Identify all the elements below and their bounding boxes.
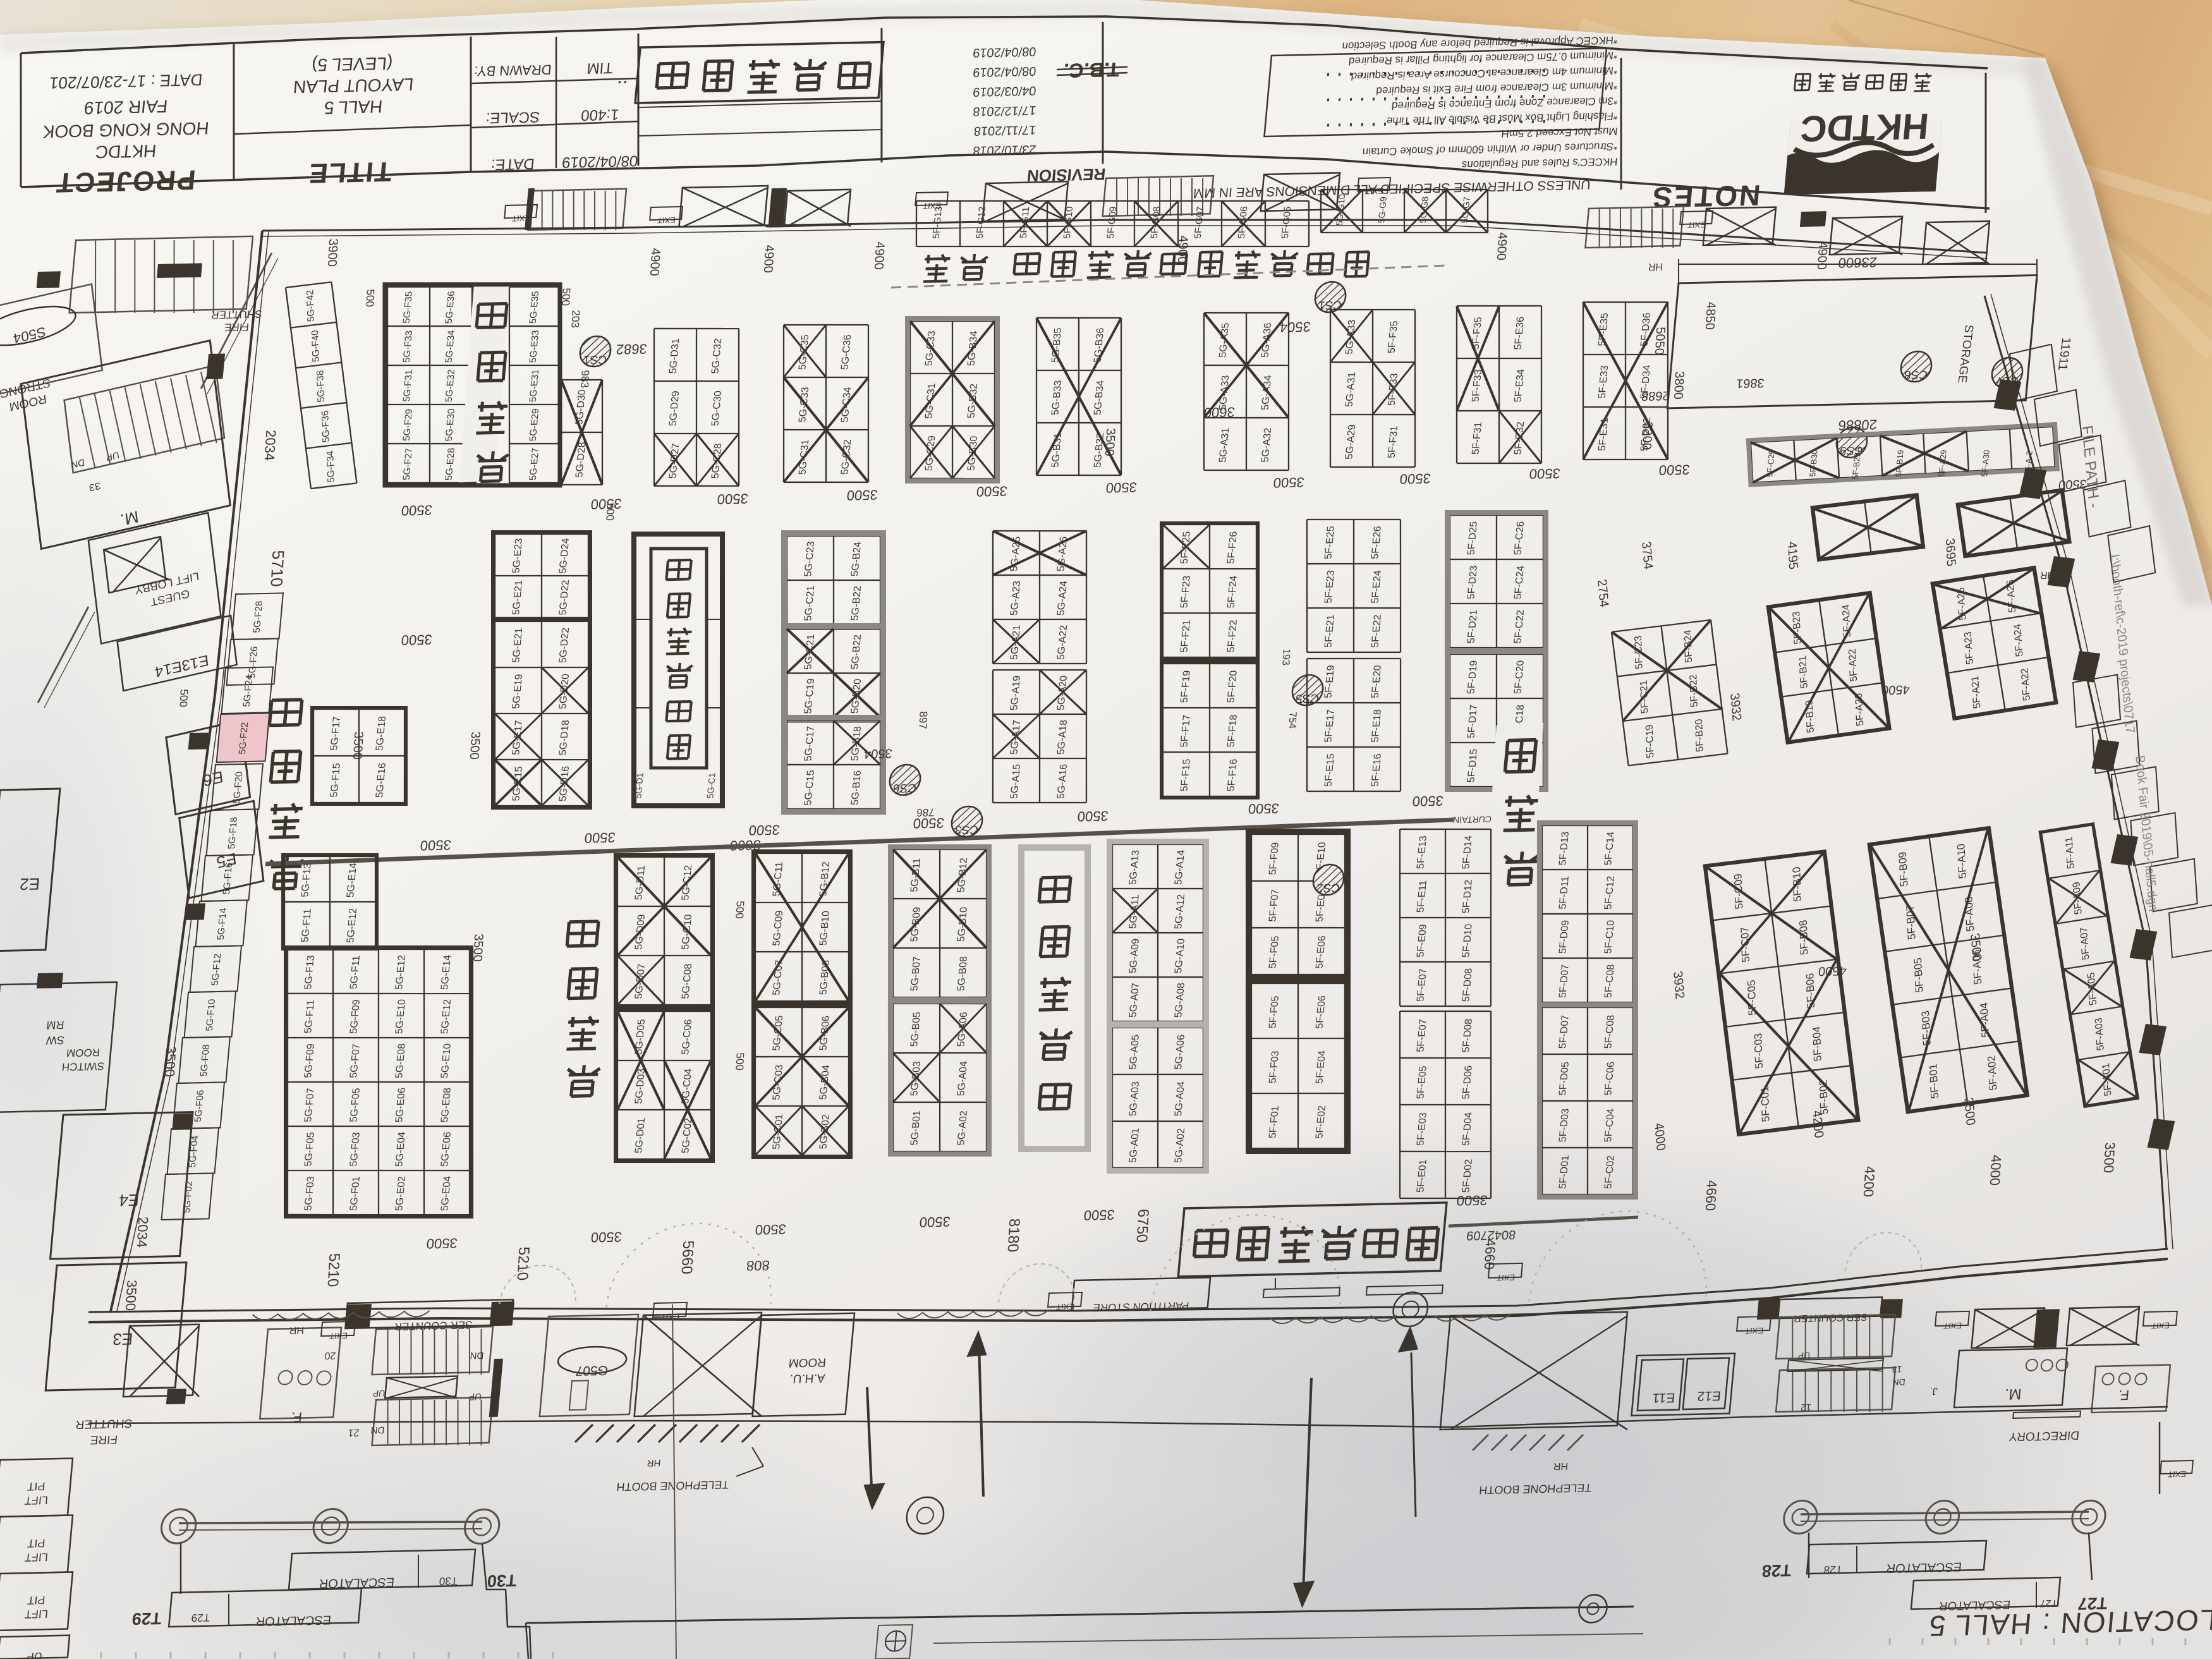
svg-text:SCALE:: SCALE: (485, 108, 540, 126)
svg-text:5660: 5660 (678, 1240, 697, 1275)
svg-text:5G-F34: 5G-F34 (325, 450, 337, 483)
svg-text:SER COUNTER: SER COUNTER (394, 1319, 473, 1333)
svg-text:5F-A22: 5F-A22 (1847, 648, 1860, 683)
svg-text:T30: T30 (487, 1571, 518, 1591)
svg-text:UP: UP (468, 1391, 482, 1402)
svg-text:3500: 3500 (755, 1221, 787, 1237)
svg-text:T29: T29 (131, 1609, 162, 1629)
svg-text:3504: 3504 (863, 746, 892, 761)
svg-text:LIFT: LIFT (24, 1608, 49, 1621)
svg-text:EXIT: EXIT (660, 1312, 679, 1322)
svg-text:5F-B19: 5F-B19 (1803, 699, 1816, 734)
svg-text:5F-B22: 5F-B22 (1687, 674, 1700, 708)
svg-text:3500: 3500 (913, 815, 945, 831)
svg-text:EXIT: EXIT (511, 214, 530, 224)
svg-text:SWITCH: SWITCH (61, 1060, 105, 1073)
svg-text:08/04/2019: 08/04/2019 (972, 44, 1036, 59)
svg-text:5F-C01: 5F-C01 (1759, 1086, 1772, 1123)
svg-text:EXIT: EXIT (329, 1331, 348, 1341)
svg-text:CS8: CS8 (1904, 368, 1928, 382)
svg-text:5F-A04: 5F-A04 (1978, 1002, 1992, 1038)
svg-text:DN: DN (1892, 1377, 1906, 1387)
svg-text:8180: 8180 (1004, 1218, 1023, 1253)
svg-text:5F-B10: 5F-B10 (1790, 866, 1804, 902)
svg-text:3861: 3861 (1735, 376, 1765, 391)
svg-text:5F-B08: 5F-B08 (1797, 919, 1811, 956)
svg-text:M.: M. (2004, 1385, 2022, 1403)
svg-text:12: 12 (1800, 1402, 1811, 1413)
svg-text:4900: 4900 (761, 245, 776, 274)
svg-text:500: 500 (604, 502, 617, 521)
svg-text:3500: 3500 (976, 483, 1008, 499)
svg-text:4900: 4900 (872, 241, 887, 270)
svg-text:500: 500 (177, 689, 190, 707)
svg-text:5F-A07: 5F-A07 (2078, 926, 2092, 961)
svg-text:4660: 4660 (1703, 1179, 1720, 1211)
svg-text:3500: 3500 (420, 837, 452, 853)
svg-text:3932: 3932 (1670, 970, 1687, 1000)
svg-text:4000: 4000 (1987, 1154, 2005, 1186)
svg-text:UP: UP (372, 1389, 386, 1399)
svg-text:3932: 3932 (1727, 692, 1744, 722)
svg-text:3500: 3500 (1412, 793, 1444, 809)
svg-text:LIFT: LIFT (24, 1494, 49, 1507)
svg-text:3500: 3500 (123, 1279, 140, 1311)
svg-text:EXIT: EXIT (1687, 220, 1706, 230)
svg-text:5F-A01: 5F-A01 (2100, 1062, 2114, 1097)
svg-text:3500: 3500 (1399, 471, 1431, 487)
svg-text:5F-C21: 5F-C21 (1638, 679, 1651, 714)
svg-text:1:400: 1:400 (580, 106, 619, 123)
svg-text:3500: 3500 (470, 933, 485, 963)
svg-text:5G-F42: 5G-F42 (305, 289, 317, 323)
svg-text:3800: 3800 (1671, 371, 1686, 400)
svg-text:3500: 3500 (1456, 1192, 1488, 1208)
svg-text:LIFT: LIFT (24, 1551, 49, 1564)
svg-text:5F-C09: 5F-C09 (1732, 873, 1745, 910)
svg-text:PROJECT: PROJECT (54, 164, 197, 198)
svg-text:5F-B24: 5F-B24 (1682, 629, 1694, 664)
svg-text:E2: E2 (19, 875, 40, 894)
svg-text:5F-C19: 5F-C19 (1644, 724, 1656, 758)
svg-text:5F-A24: 5F-A24 (2012, 623, 2026, 658)
svg-text:3500: 3500 (1529, 466, 1561, 482)
svg-text:5F-C07: 5F-C07 (1739, 926, 1752, 963)
svg-text:T29: T29 (191, 1612, 210, 1624)
svg-text:500: 500 (733, 1052, 746, 1071)
svg-text:17/11/2018: 17/11/2018 (973, 123, 1037, 138)
svg-text:5F-A25: 5F-A25 (1955, 586, 1969, 621)
svg-text:EXIT: EXIT (1496, 1273, 1515, 1283)
svg-text:CS2: CS2 (1316, 881, 1340, 895)
svg-text:T28: T28 (1761, 1561, 1792, 1581)
svg-text:5210: 5210 (324, 1253, 343, 1287)
svg-text:3504: 3504 (1279, 319, 1311, 335)
svg-text:3500: 3500 (584, 830, 616, 846)
svg-text:2688: 2688 (1641, 389, 1670, 403)
svg-text:5F-C23: 5F-C23 (1632, 635, 1645, 669)
svg-text:08/04/2019: 08/04/2019 (972, 64, 1036, 79)
svg-text:TELEPHONE BOOTH: TELEPHONE BOOTH (1479, 1481, 1593, 1497)
svg-text:FAIR 2019: FAIR 2019 (83, 97, 169, 118)
svg-text:G507: G507 (575, 1363, 609, 1378)
svg-text:T28: T28 (1823, 1564, 1843, 1576)
svg-text:NOTES: NOTES (1650, 179, 1762, 214)
svg-text:5F-B05: 5F-B05 (1912, 957, 1926, 994)
svg-text:EXIT: EXIT (657, 216, 676, 226)
svg-text:HKTDC: HKTDC (95, 141, 157, 162)
svg-text:HONG KONG BOOK: HONG KONG BOOK (42, 118, 210, 142)
svg-text:5F-B09: 5F-B09 (1897, 851, 1911, 887)
svg-text:F.: F. (2118, 1387, 2130, 1403)
svg-text:3200: 3200 (1639, 422, 1655, 451)
svg-text:(LEVEL 5): (LEVEL 5) (311, 54, 394, 75)
svg-text:5F-B20: 5F-B20 (1693, 718, 1706, 753)
svg-text:04/03/2019: 04/03/2019 (972, 83, 1036, 99)
svg-text:3500: 3500 (162, 1045, 179, 1077)
svg-text:HR: HR (2039, 569, 2055, 581)
svg-text:RM: RM (46, 1019, 65, 1032)
svg-text:EXIT: EXIT (1744, 1326, 1763, 1336)
svg-text:PIT: PIT (27, 1594, 46, 1607)
svg-text:5F-A03: 5F-A03 (2093, 1017, 2106, 1052)
svg-text:E3: E3 (112, 1330, 133, 1349)
svg-text:CS3: CS3 (954, 823, 979, 837)
svg-text:4900: 4900 (647, 248, 662, 277)
svg-text:3500: 3500 (748, 822, 781, 839)
svg-text:3500: 3500 (467, 731, 482, 760)
svg-text:CS1: CS1 (583, 353, 607, 367)
svg-text:6750: 6750 (1133, 1208, 1152, 1243)
svg-text:5F-A08: 5F-A08 (1962, 896, 1976, 932)
svg-text:5F-A10: 5F-A10 (1955, 843, 1969, 880)
svg-text:20886: 20886 (1838, 416, 1878, 433)
svg-text:193: 193 (1280, 648, 1292, 666)
svg-text:PARTITION STORE: PARTITION STORE (1093, 1299, 1190, 1313)
svg-text:3500: 3500 (1658, 461, 1691, 478)
svg-text:ESCALATOR: ESCALATOR (255, 1613, 332, 1629)
svg-text:3500: 3500 (846, 487, 878, 503)
svg-text:T30: T30 (439, 1575, 458, 1588)
svg-text:DN: DN (370, 1425, 385, 1435)
svg-text:203: 203 (569, 310, 582, 328)
svg-text:4900: 4900 (1814, 241, 1830, 270)
svg-text:HALL 5: HALL 5 (324, 97, 384, 118)
svg-text:HR: HR (1648, 261, 1663, 272)
svg-text:5F-B06: 5F-B06 (1804, 973, 1817, 1009)
svg-text:808: 808 (746, 1258, 770, 1274)
svg-text:TIM: TIM (586, 59, 614, 77)
svg-text:3500: 3500 (401, 631, 433, 648)
svg-text:5210: 5210 (514, 1246, 533, 1281)
svg-text:E11: E11 (1652, 1390, 1676, 1406)
svg-text:5F-B03: 5F-B03 (1919, 1010, 1933, 1047)
svg-text:3500: 3500 (1961, 1097, 1978, 1127)
svg-text:T.B.C.: T.B.C. (1062, 58, 1121, 82)
svg-text:3500: 3500 (1077, 808, 1109, 824)
svg-text:3500: 3500 (1248, 800, 1280, 817)
svg-text:3695: 3695 (1943, 537, 1958, 567)
svg-text:3500: 3500 (2101, 1141, 2118, 1173)
svg-text:5F-C05: 5F-C05 (1746, 979, 1759, 1016)
svg-text:5F-B23: 5F-B23 (1790, 611, 1804, 645)
svg-text:ROOM: ROOM (788, 1355, 827, 1369)
svg-text:3500: 3500 (1105, 479, 1138, 495)
svg-text:EXIT: EXIT (1943, 1321, 1962, 1331)
svg-text:5050: 5050 (1652, 327, 1667, 356)
svg-text:3500: 3500 (919, 1213, 951, 1230)
svg-text:5F-A09: 5F-A09 (2070, 881, 2084, 916)
svg-text:DRAWN BY:: DRAWN BY: (473, 62, 552, 80)
svg-text:4200: 4200 (1809, 1109, 1826, 1139)
svg-text:3500: 3500 (401, 502, 433, 518)
svg-text:TELEPHONE BOOTH: TELEPHONE BOOTH (616, 1478, 730, 1493)
svg-text:..: .. (616, 76, 629, 99)
svg-text:HR: HR (1553, 1461, 1569, 1472)
svg-text:DN: DN (470, 1350, 484, 1361)
svg-text:HR: HR (647, 1457, 661, 1468)
svg-text:3682: 3682 (616, 341, 648, 357)
svg-text:20: 20 (324, 1350, 336, 1361)
svg-text:TITLE: TITLE (307, 156, 393, 189)
svg-text:23600: 23600 (1838, 254, 1878, 270)
svg-text:PIT: PIT (27, 1480, 46, 1493)
svg-text:FIRE: FIRE (90, 1432, 118, 1446)
svg-text:5F-A23: 5F-A23 (1962, 631, 1976, 665)
svg-text:5G-F40: 5G-F40 (310, 329, 322, 363)
svg-text:4900: 4900 (1494, 232, 1509, 261)
svg-text:4000: 4000 (1651, 1122, 1668, 1152)
svg-text:ESCALATOR: ESCALATOR (1886, 1560, 1962, 1576)
svg-text:LOCATION : HALL 5: LOCATION : HALL 5 (1926, 1603, 2212, 1643)
svg-text:08/04/2019: 08/04/2019 (561, 152, 639, 171)
svg-text:5F-C03: 5F-C03 (1752, 1033, 1765, 1070)
svg-text:21: 21 (348, 1427, 360, 1438)
svg-text:17/12/2018: 17/12/2018 (972, 103, 1036, 118)
svg-text:CURTAIN: CURTAIN (1452, 814, 1492, 825)
svg-text:2034: 2034 (262, 429, 279, 461)
svg-text:3500: 3500 (717, 490, 749, 507)
svg-text:754: 754 (1286, 712, 1298, 729)
svg-text:J.: J. (1929, 1385, 1938, 1397)
svg-text:E12: E12 (1697, 1389, 1722, 1404)
svg-text:3600: 3600 (1203, 404, 1236, 420)
svg-text:SW: SW (46, 1034, 65, 1047)
svg-text:EXIT: EXIT (1364, 186, 1383, 197)
svg-text:500: 500 (363, 289, 377, 307)
svg-text:5F-B21: 5F-B21 (1797, 655, 1810, 690)
svg-text:5G-F38: 5G-F38 (315, 370, 327, 403)
svg-text:3500: 3500 (1083, 1207, 1115, 1224)
svg-text:5F-A26: 5F-A26 (2005, 579, 2019, 614)
svg-text:5F-A24: 5F-A24 (1840, 604, 1854, 638)
svg-text:5G-F36: 5G-F36 (320, 410, 332, 443)
svg-text:3754: 3754 (1639, 540, 1655, 571)
svg-text:3500: 3500 (1967, 932, 1984, 963)
svg-text:3500: 3500 (1273, 475, 1305, 491)
svg-text:5F-A11: 5F-A11 (2063, 836, 2077, 870)
svg-text:5F-A05: 5F-A05 (2086, 971, 2100, 1006)
svg-text:LAYOUT PLAN: LAYOUT PLAN (293, 75, 415, 97)
svg-text:UP: UP (26, 1650, 43, 1659)
svg-text:5F-A22: 5F-A22 (2019, 667, 2033, 702)
svg-text:3900: 3900 (325, 238, 340, 267)
svg-text:EXIT: EXIT (2151, 1321, 2170, 1331)
svg-text:SHUTTER: SHUTTER (211, 308, 263, 321)
svg-text:CS6: CS6 (892, 781, 917, 795)
svg-text:DIRECTORY: DIRECTORY (2008, 1428, 2080, 1443)
svg-text:13: 13 (1892, 1364, 1902, 1375)
svg-text:DATE:: DATE: (490, 155, 535, 173)
svg-text:DATE : 17-23/07/201: DATE : 17-23/07/201 (49, 70, 204, 92)
svg-text:5F-A02: 5F-A02 (1986, 1055, 2000, 1091)
svg-text:5F-B01: 5F-B01 (1927, 1063, 1941, 1100)
svg-text:3500: 3500 (590, 1229, 623, 1245)
svg-text:3500: 3500 (426, 1235, 458, 1251)
svg-text:2034: 2034 (134, 1216, 152, 1248)
svg-text:500: 500 (733, 901, 746, 919)
svg-text:PIT: PIT (27, 1537, 46, 1550)
svg-text:4850: 4850 (1703, 301, 1718, 331)
svg-text:3500: 3500 (1102, 428, 1117, 457)
svg-text:5710: 5710 (267, 550, 288, 587)
svg-text:HR: HR (289, 1325, 305, 1336)
svg-text:4195: 4195 (1785, 540, 1800, 570)
svg-text:FIRE: FIRE (224, 321, 249, 334)
svg-text:3500: 3500 (350, 731, 365, 760)
svg-text:4200: 4200 (1861, 1165, 1878, 1197)
svg-text:5F-B07: 5F-B07 (1904, 904, 1918, 940)
svg-text:4500: 4500 (1818, 964, 1847, 978)
svg-text:EXIT: EXIT (1055, 1302, 1074, 1312)
svg-text:5F-A20: 5F-A20 (1853, 692, 1866, 727)
svg-text:897: 897 (916, 711, 930, 729)
svg-text:UP: UP (1797, 1351, 1811, 1361)
svg-text:EXIT: EXIT (2167, 1469, 2186, 1480)
svg-text:A.H.U.: A.H.U. (789, 1371, 826, 1385)
svg-text:2754: 2754 (1595, 578, 1611, 609)
svg-text:5F-A21: 5F-A21 (1969, 675, 1983, 710)
svg-text:5F-B04: 5F-B04 (1811, 1026, 1824, 1062)
svg-text:983: 983 (578, 370, 592, 388)
svg-text:500: 500 (559, 288, 573, 306)
svg-text:HKTDC: HKTDC (1799, 106, 1931, 149)
svg-text:4900: 4900 (1175, 235, 1190, 264)
svg-text:4500: 4500 (1881, 683, 1910, 697)
svg-text:23/10/2018: 23/10/2018 (972, 142, 1036, 157)
svg-text:ROOM: ROOM (66, 1046, 100, 1059)
